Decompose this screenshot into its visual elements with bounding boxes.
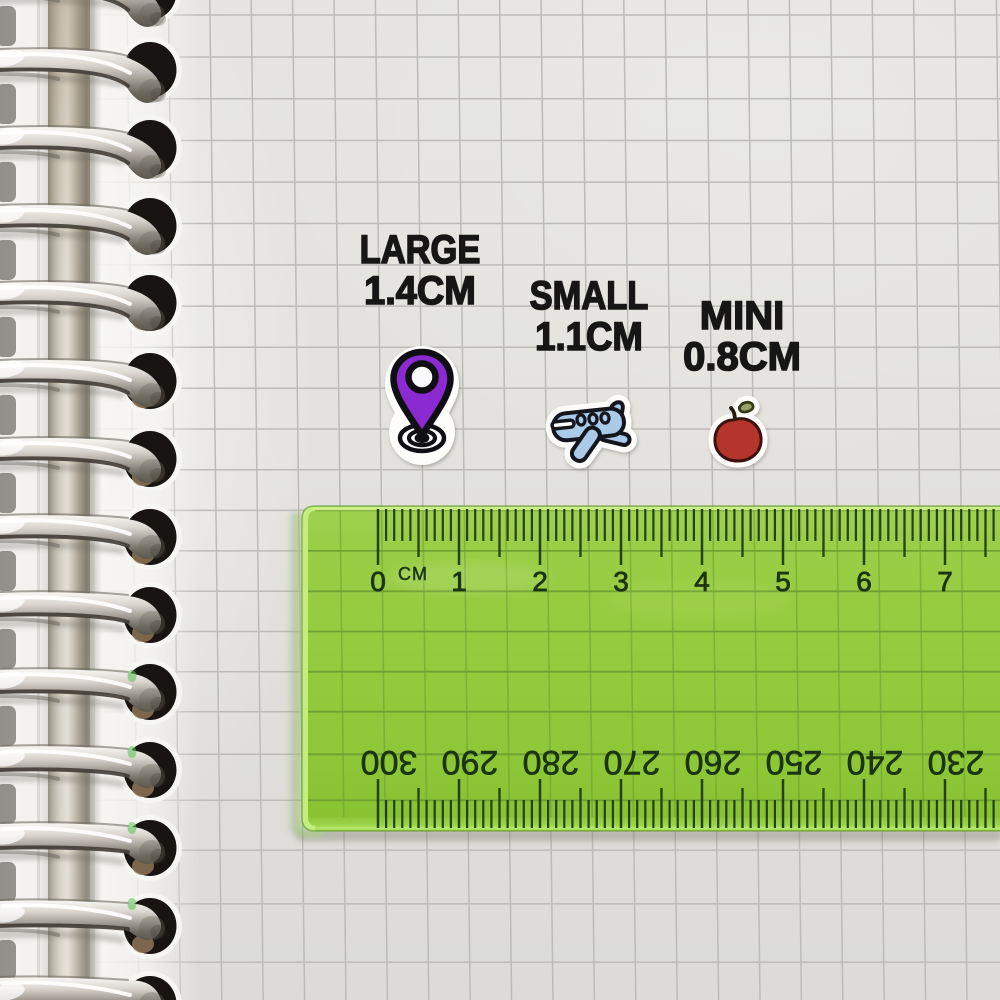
svg-text:270: 270 — [604, 743, 661, 781]
svg-text:3: 3 — [613, 566, 629, 597]
svg-text:6: 6 — [856, 566, 872, 597]
svg-text:2: 2 — [532, 566, 548, 597]
svg-text:240: 240 — [847, 743, 904, 781]
svg-text:5: 5 — [775, 566, 791, 597]
svg-text:1: 1 — [451, 566, 467, 597]
svg-text:260: 260 — [685, 743, 742, 781]
svg-text:290: 290 — [442, 743, 499, 781]
svg-text:250: 250 — [766, 743, 823, 781]
svg-text:280: 280 — [523, 743, 580, 781]
svg-text:7: 7 — [937, 566, 953, 597]
svg-text:230: 230 — [928, 743, 985, 781]
svg-text:CM: CM — [398, 564, 428, 584]
svg-text:300: 300 — [361, 743, 418, 781]
svg-text:0: 0 — [370, 566, 386, 597]
svg-text:4: 4 — [694, 566, 710, 597]
